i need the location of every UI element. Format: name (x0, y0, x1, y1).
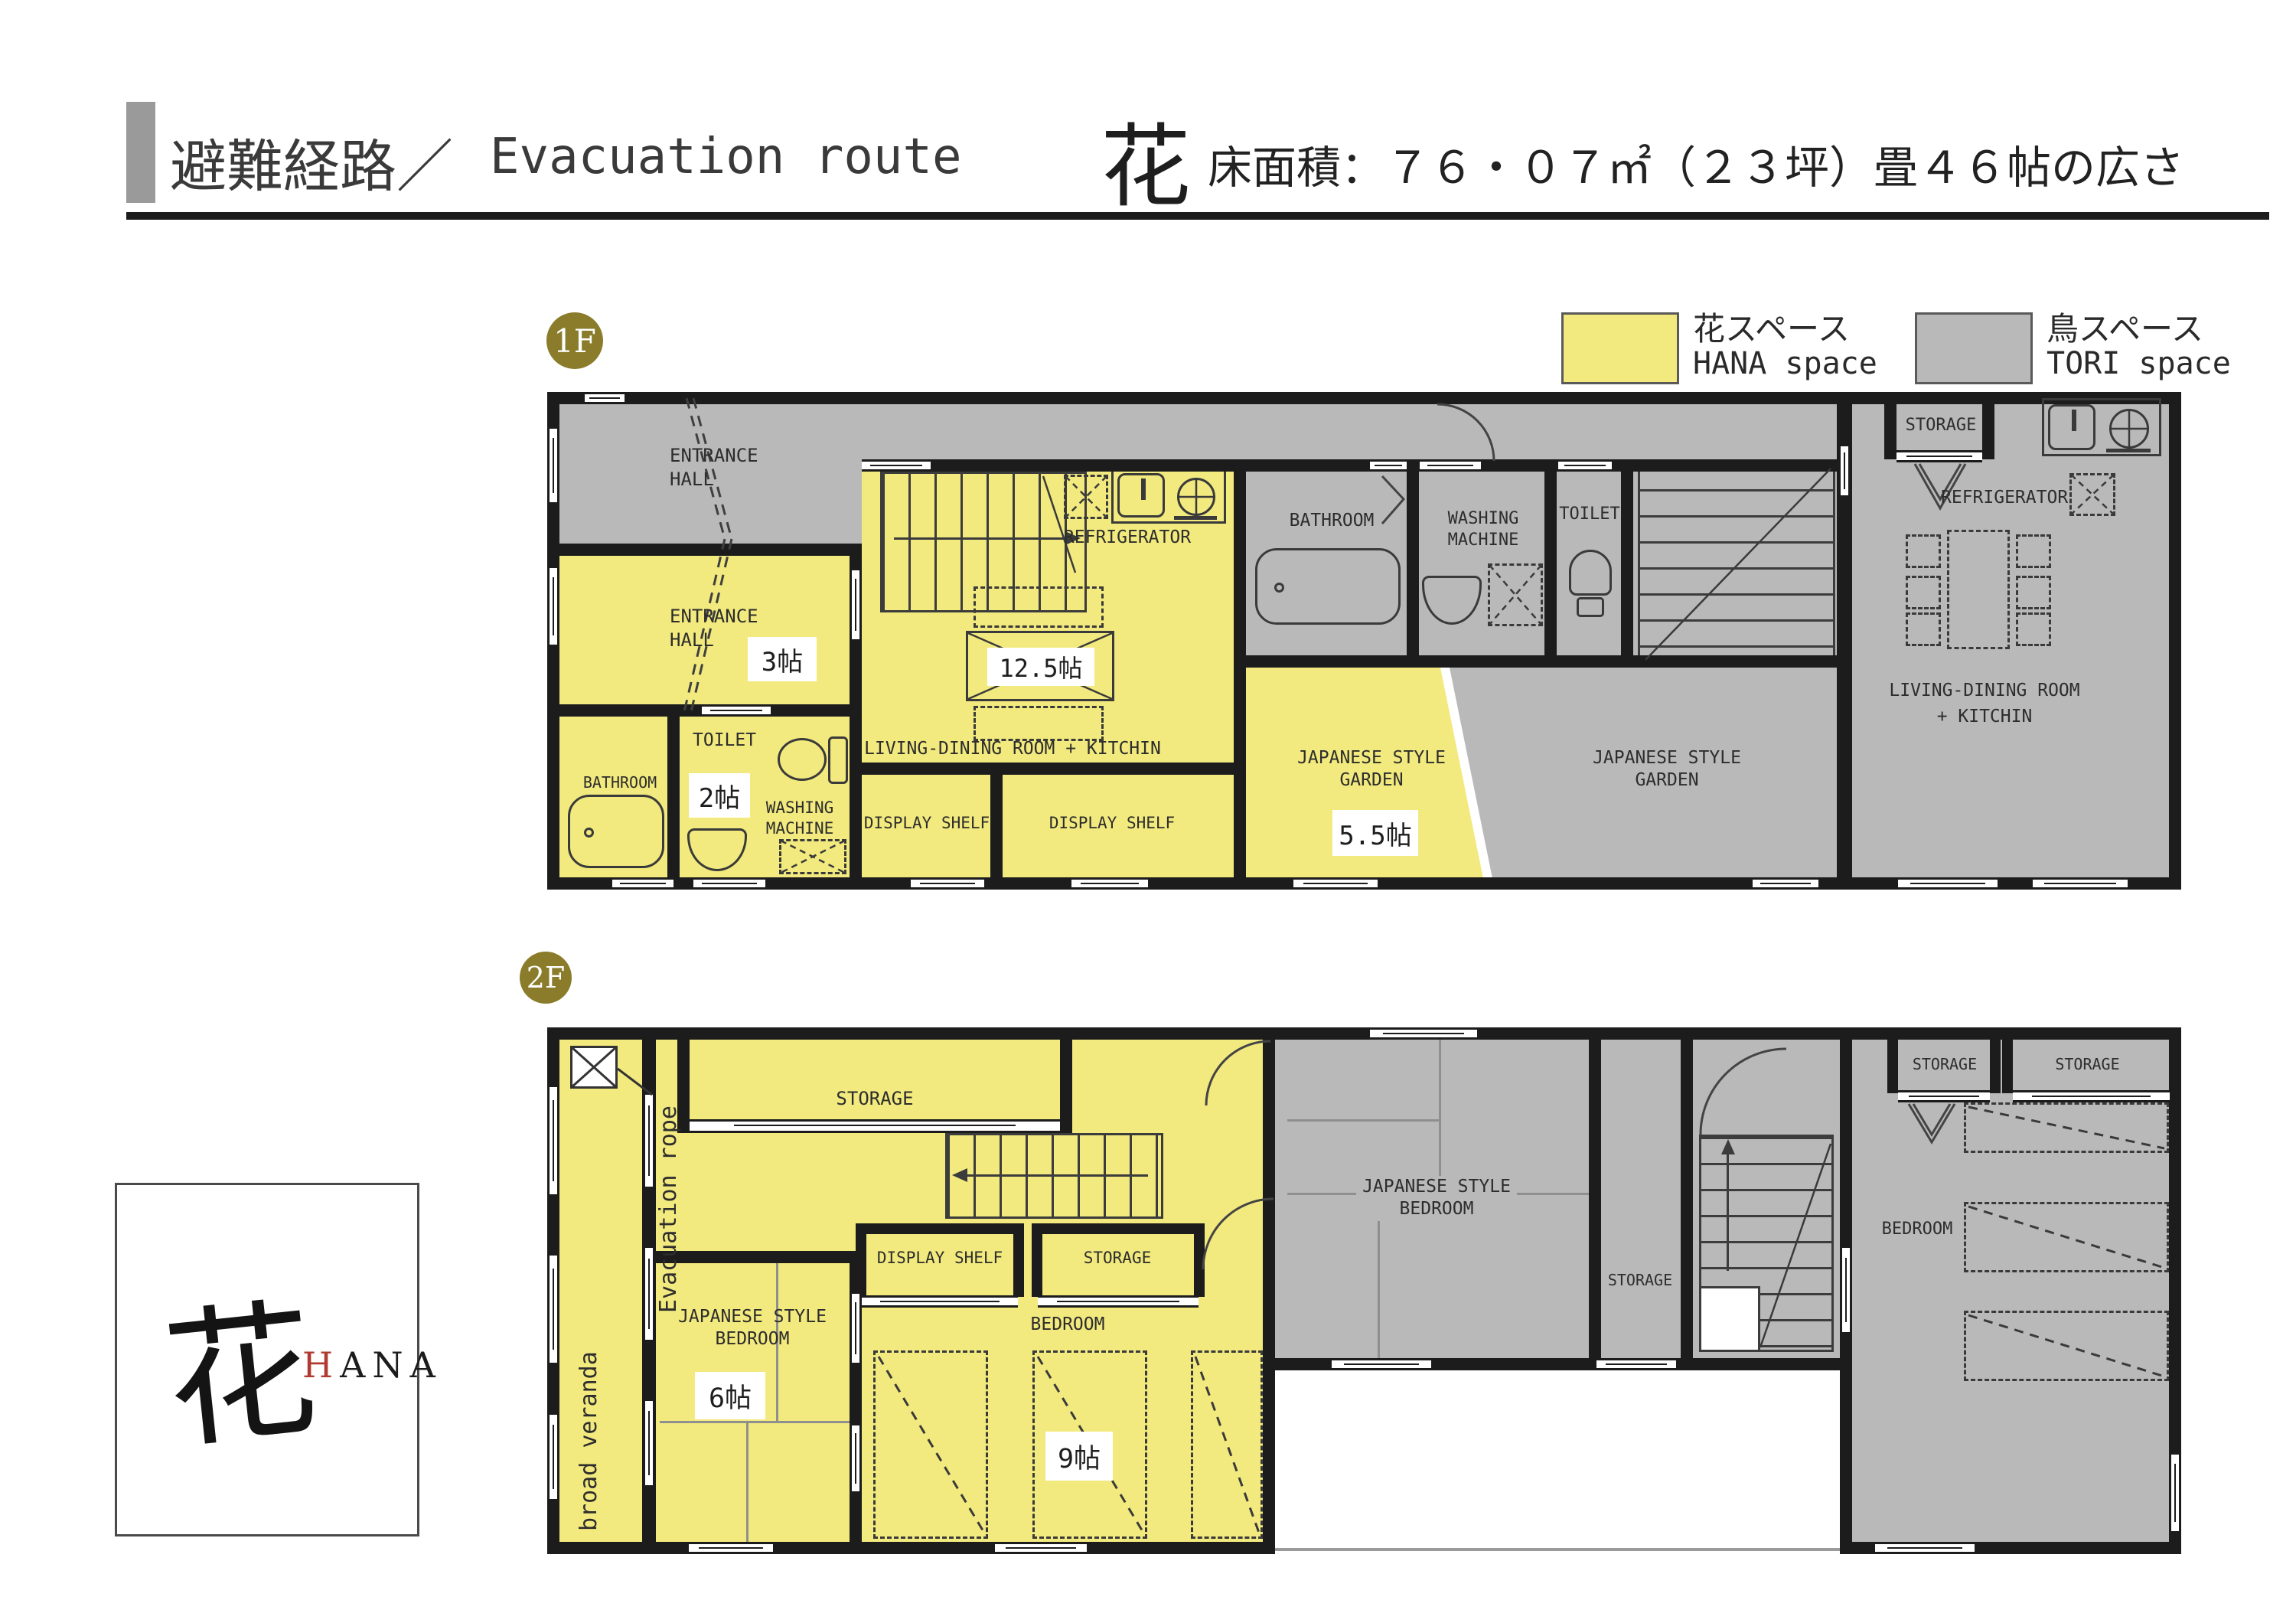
stove-base (1174, 516, 1217, 520)
chair-box (1906, 534, 1941, 568)
chair-box (1906, 612, 1941, 646)
f1-hana-washing-label: WASHING MACHINE (750, 798, 850, 839)
tatami-line (1287, 1119, 1439, 1122)
stove-base (2106, 449, 2151, 452)
stairs-arrow (894, 537, 1068, 540)
stairs-icon (1638, 461, 1835, 666)
window (689, 1542, 773, 1554)
sliding-door (862, 1295, 1018, 1308)
sliding-door (1896, 450, 1982, 462)
sliding-door (862, 459, 931, 472)
window (1596, 1358, 1676, 1370)
f1-wall (1234, 655, 1840, 668)
logo-kanji: 花 (154, 1249, 325, 1479)
header-accent-bar (126, 102, 155, 203)
chair-box (2016, 612, 2051, 646)
bed-box (1964, 1102, 2169, 1153)
sliding-door (1898, 1090, 1990, 1102)
f1-wall (1621, 472, 1633, 655)
toilet-icon (778, 736, 851, 784)
sliding-door (690, 1119, 1060, 1133)
sliding-door (850, 570, 862, 639)
f1-display-shelf-left-label: DISPLAY SHELF (862, 813, 992, 834)
evacuation-rope-icon (570, 1046, 618, 1089)
sliding-door (1038, 1295, 1199, 1308)
window (547, 1415, 559, 1499)
washing-machine-box (779, 839, 846, 874)
f2-wall (1060, 1040, 1072, 1133)
f1-hana-table-size: 12.5帖 (987, 648, 1094, 686)
logo-latin: HANA (302, 1344, 442, 1386)
f1-wall (862, 459, 1840, 472)
window (1332, 1358, 1431, 1370)
legend-tori-label-en: TORI space (2047, 346, 2231, 381)
f1-display-shelf-right-label: DISPLAY SHELF (1003, 813, 1221, 834)
f2-tori-storage-2-label: STORAGE (2005, 1055, 2170, 1075)
sliding-door (850, 1294, 862, 1363)
legend-hana-label-jp: 花スペース (1693, 303, 1850, 350)
roof-edge-line (1275, 1548, 1840, 1551)
logo-box: 花 HANA (115, 1183, 419, 1536)
tatami-line (746, 1423, 748, 1542)
window (547, 1087, 559, 1194)
broad-veranda-label: broad veranda (576, 1324, 602, 1531)
f1-tori-ldk-label-2: + KITCHIN (1889, 706, 2080, 728)
f1-hana-toilet-size: 2帖 (689, 773, 750, 818)
f2-hana-storage-small-label: STORAGE (1041, 1248, 1194, 1269)
window (1898, 877, 1998, 890)
window (612, 877, 673, 890)
chair-box (2016, 534, 2051, 568)
entry-door (585, 392, 625, 404)
dining-table-box (974, 706, 1104, 741)
futon-box (1191, 1350, 1263, 1539)
header-rule (126, 212, 2269, 220)
window (643, 1401, 655, 1485)
f2-hana-bedroom-label: BEDROOM (1018, 1314, 1117, 1336)
window (1370, 1027, 1477, 1040)
refrigerator-box (2069, 473, 2115, 516)
window (1840, 1248, 1852, 1332)
f2-tori-bedroom-label: BEDROOM (1867, 1219, 1967, 1240)
f2-wall (1681, 1040, 1693, 1358)
dining-table-box (1947, 530, 2010, 649)
page-title-jp: 避難経路／ (170, 121, 453, 203)
f1-tori-entrance-hall-label: ENTRANCE HALL (670, 444, 769, 491)
logo-latin-rest: ANA (340, 1344, 442, 1386)
kitchen-sink-icon (1117, 473, 1165, 518)
window (911, 877, 984, 890)
bed-box (1964, 1311, 2169, 1381)
f1-wall (1407, 472, 1419, 655)
sliding-door (1420, 459, 1481, 472)
f1-wall (1544, 472, 1557, 655)
kitchen-sink-icon (2048, 404, 2095, 450)
stairs-arrowhead (952, 1168, 967, 1182)
window (547, 568, 559, 645)
f2-hana-bedroom-size: 9帖 (1045, 1432, 1113, 1481)
dining-table-box (974, 586, 1104, 628)
sliding-door (2013, 1090, 2170, 1102)
legend-hana-label-en: HANA space (1693, 346, 1877, 381)
f2-tori-storage-mid-label: STORAGE (1598, 1271, 1682, 1291)
window (2033, 877, 2128, 890)
area-spec: 床面積：７６・０７㎡（２３坪）畳４６帖の広さ (1208, 132, 2184, 196)
window (547, 1256, 559, 1363)
chair-box (2016, 576, 2051, 609)
stove-icon (1177, 478, 1215, 516)
bathtub-icon (1255, 548, 1401, 625)
f1-tori-ldk-label-1: LIVING-DINING ROOM (1889, 680, 2080, 702)
f1-wall (990, 775, 1003, 877)
f1-wall (862, 763, 1234, 775)
f2-hana-storage-label: STORAGE (690, 1087, 1060, 1111)
f1-hana-garden-size: 5.5帖 (1332, 810, 1418, 856)
f2-wall (1589, 1040, 1601, 1358)
f1-hana-refrigerator-label: REFRIGERATOR (1062, 527, 1192, 549)
f1-hana-entrance-size: 3帖 (748, 637, 817, 681)
f2-hana-jsb-size: 6帖 (695, 1372, 765, 1419)
f1-tori-bathroom-label: BATHROOM (1270, 510, 1393, 532)
window (1875, 1542, 1975, 1554)
f1-tori-washing-label: WASHING MACHINE (1430, 508, 1537, 551)
f1-wall (1234, 472, 1246, 877)
f1-hana-ldk-label: LIVING-DINING ROOM + KITCHIN (863, 738, 1162, 760)
f2-hana-jsb-label: JAPANESE STYLE BEDROOM (672, 1306, 833, 1351)
window (1753, 877, 1818, 890)
window (2169, 1455, 2181, 1531)
floor2-badge-label: 2F (527, 961, 566, 994)
f1-tori-garden-label: JAPANESE STYLE GARDEN (1590, 747, 1743, 792)
window (643, 1248, 655, 1340)
bed-box (1964, 1202, 2169, 1272)
sliding-door (1838, 446, 1851, 495)
legend-tori-swatch (1915, 312, 2033, 384)
window (643, 1095, 655, 1187)
washing-machine-box (1488, 563, 1543, 626)
stove-icon (2109, 409, 2149, 449)
sliding-door (1558, 459, 1612, 472)
bathtub-icon (568, 795, 664, 868)
door-gap (1370, 459, 1407, 472)
f1-wall (559, 544, 862, 556)
unit-kanji: 花 (1101, 93, 1191, 224)
f1-hana-bathroom-label: BATHROOM (566, 773, 673, 793)
legend-tori-label-jp: 鳥スペース (2047, 303, 2203, 350)
f1-hana-garden-label: JAPANESE STYLE GARDEN (1295, 747, 1448, 792)
sliding-door (850, 1425, 862, 1491)
evacuation-route-sheet: 避難経路／ Evacuation route 花 床面積：７６・０７㎡（２３坪）… (0, 0, 2296, 1623)
tatami-line (660, 1421, 850, 1423)
stairs-arrowhead (1721, 1139, 1735, 1154)
chair-box (1906, 576, 1941, 609)
floor2-badge: 2F (520, 952, 572, 1004)
window (693, 877, 765, 890)
f2-display-shelf-label: DISPLAY SHELF (863, 1248, 1016, 1269)
tatami-line (1439, 1040, 1441, 1193)
window (1293, 877, 1378, 890)
futon-box (873, 1350, 988, 1539)
sliding-door (702, 704, 771, 717)
page-title-en: Evacuation route (490, 129, 962, 185)
floor1-badge: 1F (546, 312, 603, 369)
f1-tori-toilet-label: TOILET (1555, 504, 1624, 525)
f1-tori-refrigerator-label: REFRIGERATOR (1941, 487, 2067, 509)
logo-latin-h: H (302, 1344, 340, 1386)
f1-hana-toilet-label: TOILET (693, 730, 777, 752)
f1-tori-storage-label: STORAGE (1889, 415, 1993, 436)
f2-tori-storage-1-label: STORAGE (1887, 1055, 2002, 1075)
f2-tori-jsb-label: JAPANESE STYLE BEDROOM (1356, 1176, 1517, 1221)
toilet-icon (1569, 550, 1612, 619)
evacuation-rope-label: Evacuation rope (655, 1068, 682, 1313)
stairs-arrow (1727, 1148, 1729, 1271)
legend-hana-swatch (1561, 312, 1679, 384)
refrigerator-box (1064, 475, 1108, 519)
floor1-badge-label: 1F (553, 322, 596, 360)
f1-wall (667, 717, 680, 877)
window (995, 1542, 1087, 1554)
stairs-landing (1699, 1286, 1760, 1352)
stairs-arrow (966, 1174, 1148, 1177)
window (547, 429, 559, 502)
window (1071, 877, 1148, 890)
